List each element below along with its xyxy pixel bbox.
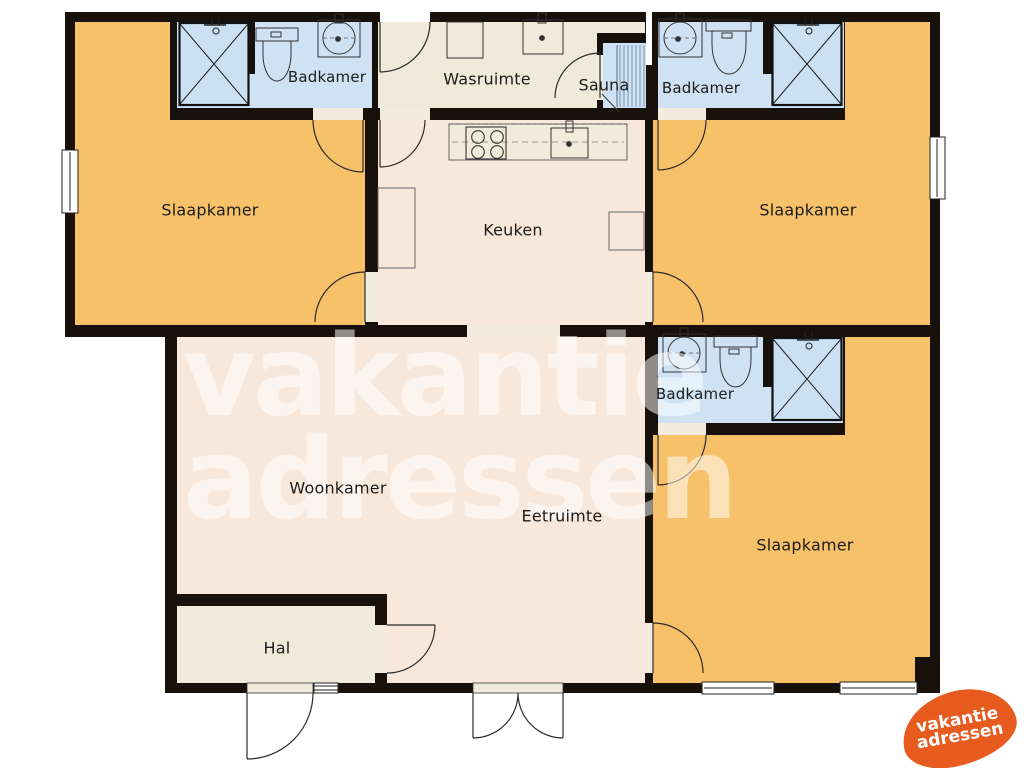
door-slaapkamer-bottom [653, 623, 703, 673]
laundry-sink-icon [523, 13, 563, 54]
threshold-hal-entrance [247, 683, 313, 693]
shower-icon [180, 17, 249, 105]
sink-icon [318, 14, 360, 57]
door-slaapkamer-left [315, 272, 365, 322]
wall-partial-tr [763, 22, 772, 74]
room-label-keuken: Keuken [483, 221, 543, 240]
door-hal-entrance [247, 693, 313, 759]
door-badkamer-middle [658, 435, 706, 485]
room-label-wasruimte: Wasruimte [443, 70, 531, 89]
room-label-slaapkamer-bottom: Slaapkamer [756, 536, 853, 555]
sink-icon [663, 328, 706, 372]
window-right [930, 137, 945, 199]
shower-icon [773, 17, 842, 105]
window-bottom-1 [702, 682, 774, 694]
door-badkamer-tr [658, 120, 706, 170]
room-label-woonkamer: Woonkamer [289, 479, 386, 498]
door-keuken [380, 120, 425, 167]
door-hal [387, 625, 435, 673]
kitchen-cabinet-right [609, 212, 644, 250]
toilet-icon [714, 336, 757, 387]
room-label-slaapkamer-right: Slaapkamer [759, 201, 856, 220]
window-left [62, 150, 78, 213]
wall-partial-m [763, 337, 772, 387]
room-label-badkamer-middle: Badkamer [656, 385, 734, 403]
room-label-hal: Hal [264, 639, 291, 658]
door-wasruimte-exterior [380, 22, 430, 72]
window-hal [314, 683, 338, 693]
toilet-icon [706, 20, 751, 74]
door-main-entrance [473, 693, 563, 738]
door-badkamer-tl [313, 120, 363, 172]
room-label-eetruimte: Eetruimte [522, 507, 603, 526]
threshold-main-entrance [473, 683, 563, 693]
room-label-badkamer-top-left: Badkamer [288, 68, 366, 86]
shower-icon [773, 332, 842, 420]
room-label-badkamer-top-right: Badkamer [662, 79, 740, 97]
kitchen-cabinet-left [378, 188, 415, 268]
door-slaapkamer-right [653, 272, 703, 322]
sink-icon [659, 13, 702, 57]
fixtures-overlay [0, 0, 1024, 768]
kitchen-counter [449, 121, 627, 160]
logo-text: vakantie adressen [913, 705, 1005, 752]
room-label-sauna: Sauna [578, 76, 629, 95]
room-label-slaapkamer-left: Slaapkamer [161, 201, 258, 220]
washing-machine-icon [447, 22, 483, 58]
floorplan: vakantie adressen Slaapkamer Slaapkamer … [0, 0, 1024, 768]
window-bottom-2 [840, 682, 917, 694]
